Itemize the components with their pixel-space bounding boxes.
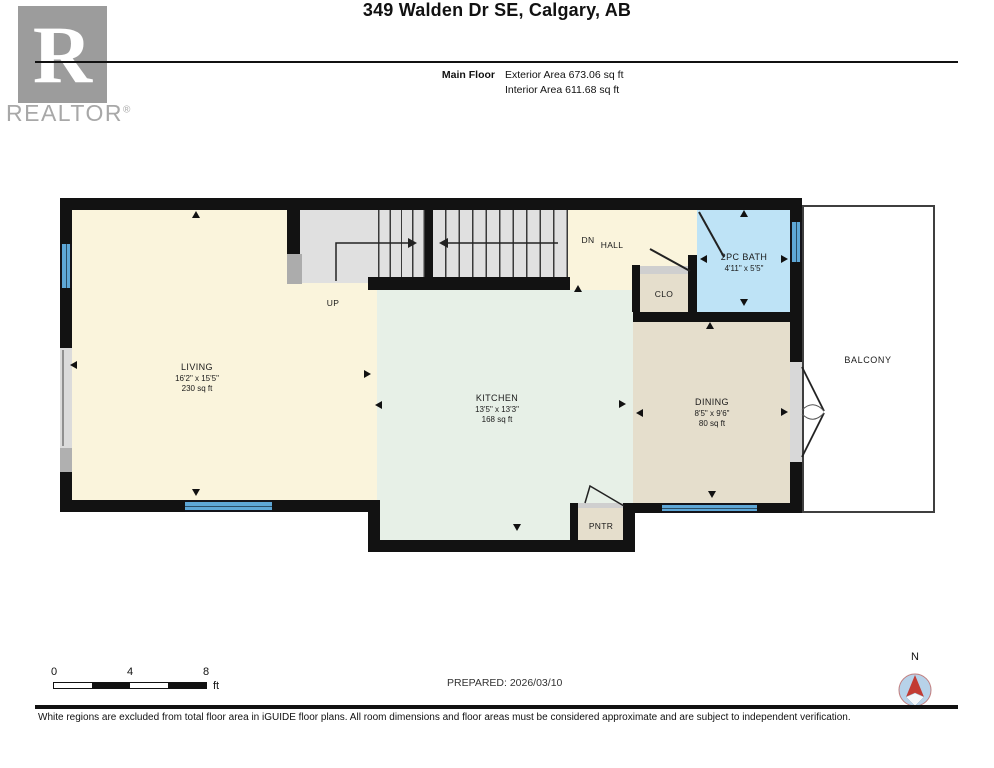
- window: [60, 244, 72, 288]
- scale-tick-4: 4: [123, 666, 137, 678]
- stair-down-label: DN: [582, 235, 595, 245]
- wall: [688, 255, 697, 312]
- stair-lower-landing: [287, 254, 302, 284]
- registered-mark: ®: [123, 104, 132, 115]
- scale-tick-0: 0: [47, 666, 61, 678]
- window: [790, 222, 802, 262]
- wall: [60, 198, 72, 244]
- scale-segment: [54, 683, 92, 688]
- measure-arrow: [70, 361, 77, 369]
- measure-arrow: [192, 211, 200, 218]
- closet-door-strip: [640, 266, 688, 274]
- measure-arrow: [574, 285, 582, 292]
- window: [662, 503, 757, 513]
- scale-segment: [92, 683, 130, 688]
- floor-plan-page: { "header": { "title": "349 Walden Dr SE…: [0, 0, 994, 768]
- french-door-opening: [790, 362, 802, 462]
- wall: [632, 265, 640, 312]
- measure-arrow: [740, 210, 748, 217]
- entry-step: [60, 448, 72, 472]
- balcony-label: BALCONY: [844, 355, 891, 365]
- measure-arrow: [619, 400, 626, 408]
- measure-arrow: [513, 524, 521, 531]
- measure-arrow: [708, 491, 716, 498]
- stair-up-label: UP: [327, 298, 339, 308]
- closet-label: CLO: [655, 289, 673, 299]
- compass-north-label: N: [906, 651, 924, 663]
- pantry-label: PNTR: [589, 521, 613, 531]
- disclaimer-text: White regions are excluded from total fl…: [38, 712, 851, 723]
- stair-flight-down: [433, 210, 568, 277]
- wall: [790, 462, 802, 513]
- window: [185, 500, 272, 512]
- wall: [570, 503, 578, 540]
- measure-arrow: [781, 255, 788, 263]
- dining-label: DINING 8'5" x 9'6" 80 sq ft: [695, 397, 730, 429]
- measure-arrow: [364, 370, 371, 378]
- realtor-logo-letter: R: [18, 6, 107, 103]
- wall: [368, 277, 570, 290]
- realtor-logo: R: [18, 6, 107, 103]
- wall: [425, 210, 433, 277]
- measure-arrow: [781, 408, 788, 416]
- wall: [790, 198, 802, 222]
- stair-landing-area: [300, 210, 368, 283]
- exterior-area: Exterior Area 673.06 sq ft: [505, 69, 623, 81]
- measure-arrow: [700, 255, 707, 263]
- bath-label: 2PC BATH 4'11" x 5'5": [721, 252, 768, 274]
- stair-flight-up: [368, 210, 425, 277]
- wall: [60, 288, 72, 348]
- measure-arrow: [740, 299, 748, 306]
- floor-label: Main Floor: [442, 69, 495, 81]
- measure-arrow: [192, 489, 200, 496]
- living-label: LIVING 16'2" x 15'5" 230 sq ft: [175, 362, 219, 394]
- wall: [633, 312, 802, 322]
- measure-arrow: [636, 409, 643, 417]
- wall: [60, 198, 802, 210]
- scale-tick-8: 8: [199, 666, 213, 678]
- wall: [287, 210, 300, 254]
- header-divider: [35, 61, 958, 63]
- kitchen-label: KITCHEN 13'5" x 13'3" 168 sq ft: [475, 393, 519, 425]
- scale-segment: [130, 683, 168, 688]
- hall-label: HALL: [601, 240, 623, 250]
- scale-segment: [168, 683, 206, 688]
- prepared-date: PREPARED: 2026/03/10: [447, 677, 562, 689]
- measure-arrow: [375, 401, 382, 409]
- footer-divider: [35, 705, 958, 709]
- realtor-logo-text: REALTOR®: [6, 100, 132, 127]
- page-title: 349 Walden Dr SE, Calgary, AB: [0, 0, 994, 21]
- scale-unit: ft: [213, 680, 219, 692]
- measure-arrow: [706, 322, 714, 329]
- wall: [368, 540, 635, 552]
- interior-area: Interior Area 611.68 sq ft: [505, 84, 619, 96]
- scale-bar: [53, 682, 207, 689]
